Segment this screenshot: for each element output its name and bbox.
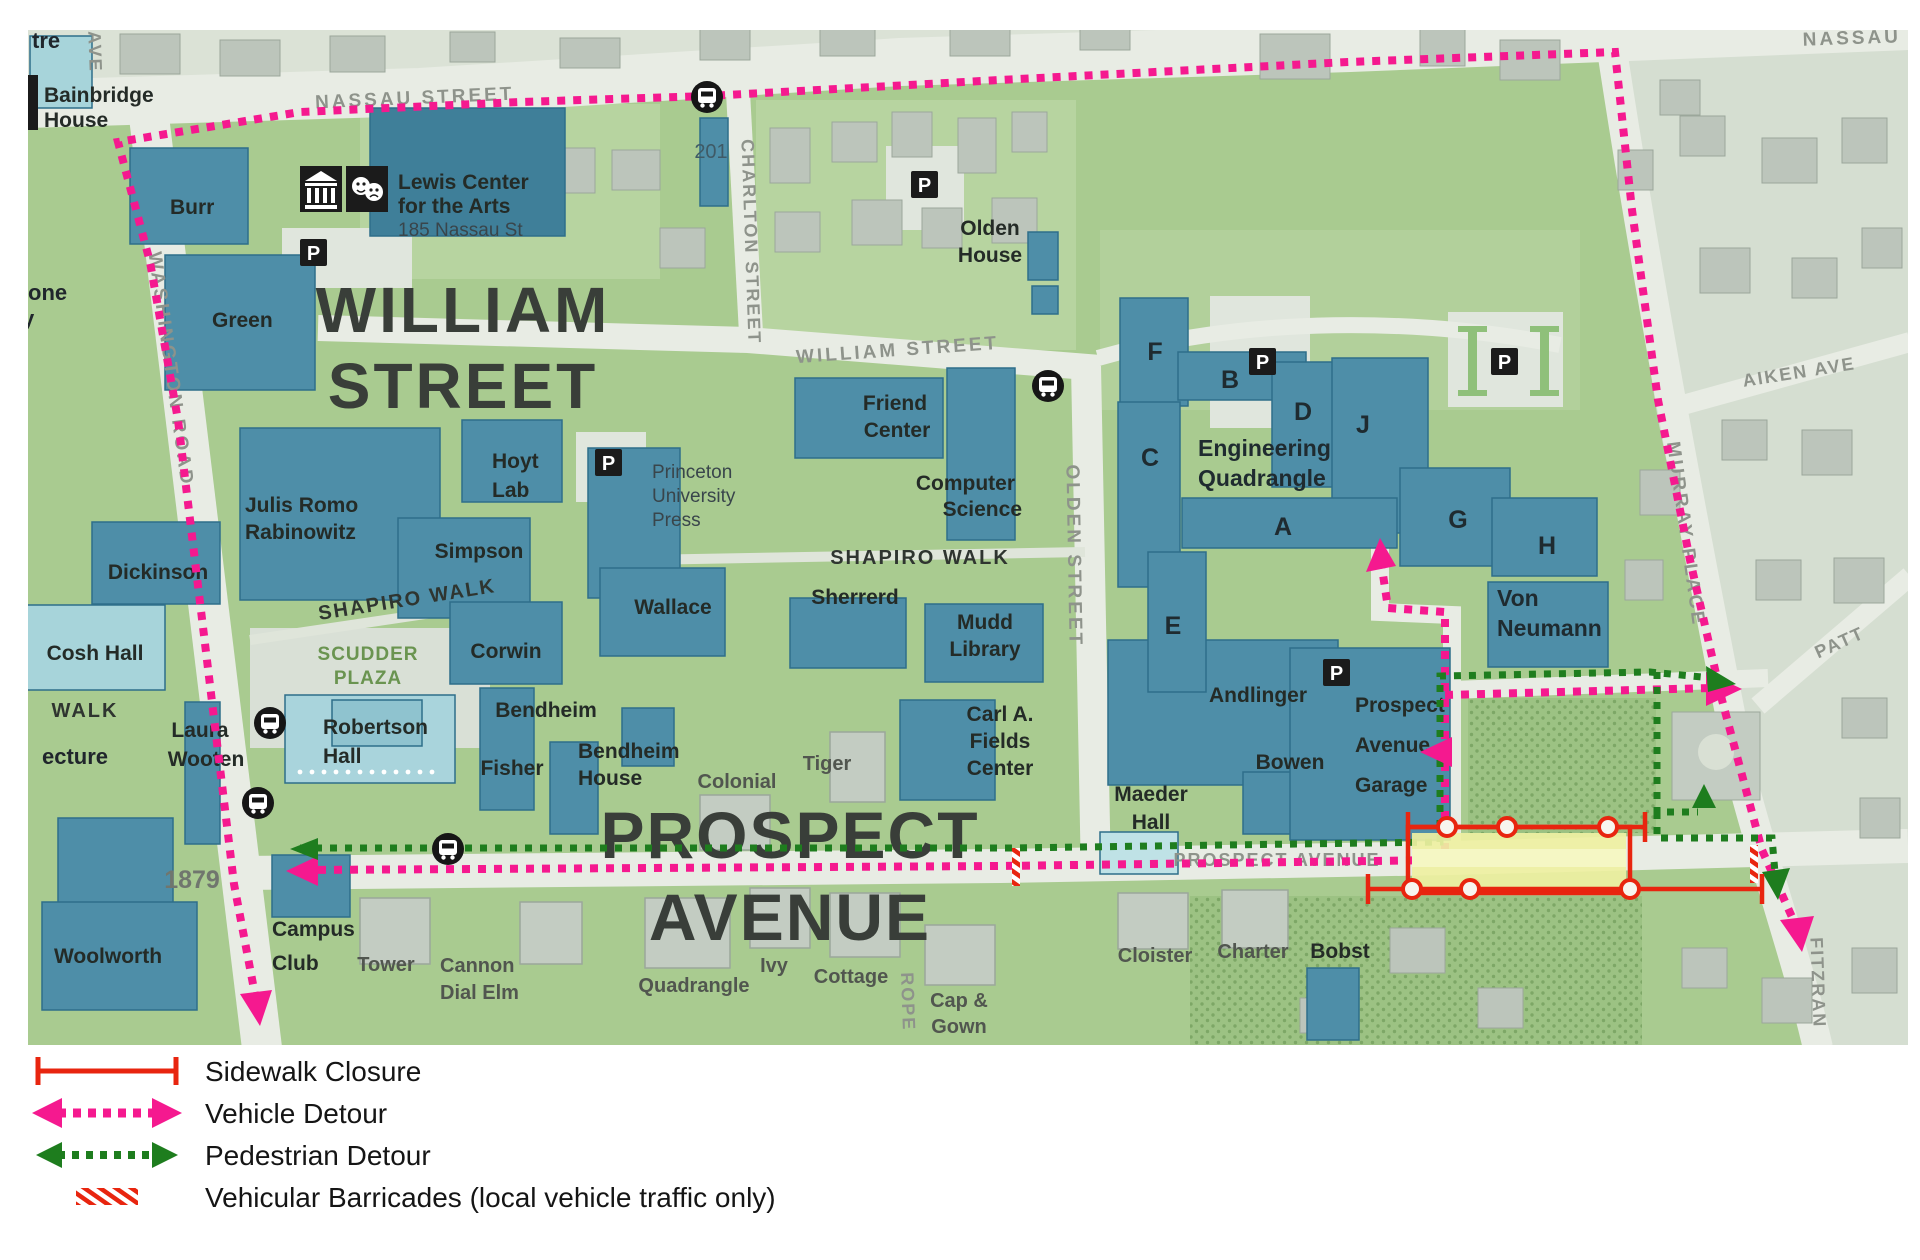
label-cosh-hall: Cosh Hall <box>47 642 144 665</box>
label-bendheim-house-1: Bendheim <box>578 740 680 763</box>
label-garage-1: Prospect <box>1355 694 1445 717</box>
label-wallace: Wallace <box>634 596 711 619</box>
label-mudd-1: Mudd <box>957 611 1013 634</box>
label-bowen: Bowen <box>1256 751 1325 774</box>
building-charter <box>1222 890 1288 948</box>
parking-icon: P <box>911 171 938 198</box>
label-corwin: Corwin <box>470 640 541 663</box>
label-press-2: University <box>652 486 736 507</box>
construction-zone-band <box>1412 849 1626 867</box>
legend-vehicle-detour-arrow-right <box>152 1098 182 1128</box>
label-robertson-2: Hall <box>323 745 362 768</box>
page: NASSAU STREET NASSAU WILLIAM STREET WASH… <box>0 0 1920 1260</box>
parking-icon: P <box>300 239 327 266</box>
label-quadrangle: Quadrangle <box>638 975 749 997</box>
svg-text:P: P <box>602 453 615 475</box>
label-bainbridge-2: House <box>44 109 108 132</box>
field <box>1468 698 1656 833</box>
label-eng-j: J <box>1356 411 1370 439</box>
label-201: 201 <box>694 141 727 163</box>
label-bobst: Bobst <box>1310 940 1370 963</box>
label-bainbridge-1: Bainbridge <box>44 84 154 107</box>
parking-icon: P <box>1323 659 1350 686</box>
label-woolworth: Woolworth <box>54 945 162 968</box>
bus-stop-icon <box>432 833 464 865</box>
museum-icon <box>300 166 342 212</box>
label-hoyt-1: Hoyt <box>492 450 539 473</box>
shapiro-walk-east-label: SHAPIRO WALK <box>830 547 1010 569</box>
vehicular-barricade-east <box>1750 845 1758 883</box>
building-bobst <box>1307 968 1359 1040</box>
vehicular-barricade-west <box>1012 848 1020 886</box>
william-district-title-2: STREET <box>328 350 598 422</box>
label-eng-h: H <box>1538 532 1556 560</box>
label-cottage: Cottage <box>814 966 888 988</box>
label-simpson: Simpson <box>435 540 524 563</box>
label-fields-2: Fields <box>970 730 1031 753</box>
svg-text:P: P <box>1256 352 1269 374</box>
building-olden-house <box>1028 232 1058 280</box>
label-colonial: Colonial <box>698 771 777 793</box>
label-1879: 1879 <box>164 866 220 894</box>
label-maeder-2: Hall <box>1132 811 1171 834</box>
bus-stop-icon <box>254 707 286 739</box>
label-eng-quad-1: Engineering <box>1198 435 1331 461</box>
label-olden-house-1: Olden <box>960 217 1020 240</box>
olden-street-road <box>1086 366 1096 878</box>
legend-pedestrian-detour-arrow-right <box>152 1142 178 1168</box>
svg-text:P: P <box>918 175 931 197</box>
svg-text:P: P <box>307 243 320 265</box>
label-mudd-2: Library <box>949 638 1021 661</box>
label-lewis-3: 185 Nassau St <box>398 220 523 241</box>
rope-partial-label: ROPE <box>897 972 919 1032</box>
parking-icon: P <box>1249 348 1276 375</box>
building-icon <box>28 75 38 130</box>
label-von-neumann-2: Neumann <box>1497 615 1602 641</box>
label-computer-1: Computer <box>916 472 1015 495</box>
label-fisher: Fisher <box>480 757 543 780</box>
label-lewis-2: for the Arts <box>398 195 510 218</box>
label-garage-2: Avenue <box>1355 734 1430 757</box>
label-bendheim: Bendheim <box>495 699 597 722</box>
scudder-plaza-label-2: PLAZA <box>334 668 402 689</box>
label-rabinowitz-2: Rabinowitz <box>245 521 356 544</box>
legend-vehicle-detour-arrow-left <box>32 1098 62 1128</box>
label-cannon-2: Dial Elm <box>440 982 519 1004</box>
label-eng-a: A <box>1274 513 1292 541</box>
legend: Sidewalk Closure Vehicle Detour Pedestri… <box>32 1056 776 1213</box>
svg-text:P: P <box>1330 663 1343 685</box>
legend-barricade-label: Vehicular Barricades (local vehicle traf… <box>205 1182 776 1213</box>
building-cap-gown <box>925 925 995 985</box>
legend-sidewalk-closure-label: Sidewalk Closure <box>205 1056 421 1087</box>
y-partial-label: y <box>22 306 35 331</box>
ave-partial-label: AVE <box>84 31 105 73</box>
label-fields-3: Center <box>967 757 1034 780</box>
walk-partial-label: WALK <box>52 700 119 722</box>
bus-stop-icon <box>691 81 723 113</box>
tre-partial-label: tre <box>32 28 60 53</box>
label-rabinowitz-1: Julis Romo <box>245 494 358 517</box>
legend-pedestrian-detour-arrow-left <box>36 1142 62 1168</box>
label-wooten-1: Laura <box>171 719 229 742</box>
label-von-neumann-1: Von <box>1497 585 1539 611</box>
label-campus-club-2: Club <box>272 952 319 975</box>
label-maeder-1: Maeder <box>1114 783 1188 806</box>
label-wooten-2: Wooten <box>168 748 245 771</box>
label-friend-2: Center <box>864 419 931 442</box>
label-eng-quad-2: Quadrangle <box>1198 465 1326 491</box>
label-burr: Burr <box>170 196 214 219</box>
label-friend-1: Friend <box>863 392 927 415</box>
label-andlinger: Andlinger <box>1209 684 1307 707</box>
building-cloister <box>1118 893 1188 949</box>
court-building <box>1672 712 1760 800</box>
label-garage-3: Garage <box>1355 774 1427 797</box>
bus-stop-icon <box>242 787 274 819</box>
label-lewis-1: Lewis Center <box>398 171 529 194</box>
lecture-partial-label: ecture <box>42 744 108 769</box>
label-eng-e: E <box>1165 612 1182 640</box>
label-eng-f: F <box>1147 338 1162 366</box>
label-hoyt-2: Lab <box>492 479 529 502</box>
label-eng-d: D <box>1294 398 1312 426</box>
legend-vehicle-detour-label: Vehicle Detour <box>205 1098 387 1129</box>
campus-detour-map: NASSAU STREET NASSAU WILLIAM STREET WASH… <box>0 0 1920 1260</box>
theater-masks-icon <box>346 166 388 212</box>
label-campus-club-1: Campus <box>272 918 355 941</box>
label-press-3: Press <box>652 510 701 531</box>
william-district-title-1: WILLIAM <box>316 274 611 346</box>
label-fields-1: Carl A. <box>967 703 1034 726</box>
label-eng-b: B <box>1221 366 1239 394</box>
label-eng-g: G <box>1448 506 1467 534</box>
map: NASSAU STREET NASSAU WILLIAM STREET WASH… <box>22 20 1910 1048</box>
label-tower: Tower <box>357 954 415 976</box>
label-cap-gown-1: Cap & <box>930 990 988 1012</box>
label-charter: Charter <box>1217 941 1288 963</box>
building-1879-hall <box>58 818 173 910</box>
label-ivy: Ivy <box>760 955 789 977</box>
label-cloister: Cloister <box>1118 945 1193 967</box>
fitzrandolph-label: FITZRAN <box>1806 937 1829 1029</box>
legend-pedestrian-detour-label: Pedestrian Detour <box>205 1140 431 1171</box>
label-eng-c: C <box>1141 444 1159 472</box>
building-olden-house-annex <box>1032 286 1058 314</box>
one-partial-label: one <box>28 280 67 305</box>
label-tiger: Tiger <box>803 753 852 775</box>
label-green: Green <box>212 309 273 332</box>
olden-street-label: OLDEN STREET <box>1061 464 1085 647</box>
label-computer-2: Science <box>943 498 1022 521</box>
prospect-district-title-1: PROSPECT <box>600 798 979 872</box>
label-cap-gown-2: Gown <box>931 1016 987 1038</box>
building-cannon <box>520 902 582 964</box>
parking-icon: P <box>1491 348 1518 375</box>
building-friend-center <box>795 378 943 458</box>
label-bendheim-house-2: House <box>578 767 642 790</box>
label-press-1: Princeton <box>652 462 732 483</box>
prospect-district-title-2: AVENUE <box>649 880 931 954</box>
svg-text:P: P <box>1498 352 1511 374</box>
bus-stop-icon <box>1032 370 1064 402</box>
scudder-plaza-label-1: SCUDDER <box>318 644 419 665</box>
legend-barricade-symbol <box>76 1188 138 1205</box>
legend-sidewalk-closure-symbol <box>38 1057 176 1085</box>
parking-icon: P <box>595 449 622 476</box>
label-cannon-1: Cannon <box>440 955 514 977</box>
nassau-east-label: NASSAU <box>1802 26 1901 50</box>
label-sherrerd: Sherrerd <box>811 586 899 609</box>
label-robertson-1: Robertson <box>323 716 428 739</box>
label-olden-house-2: House <box>958 244 1022 267</box>
